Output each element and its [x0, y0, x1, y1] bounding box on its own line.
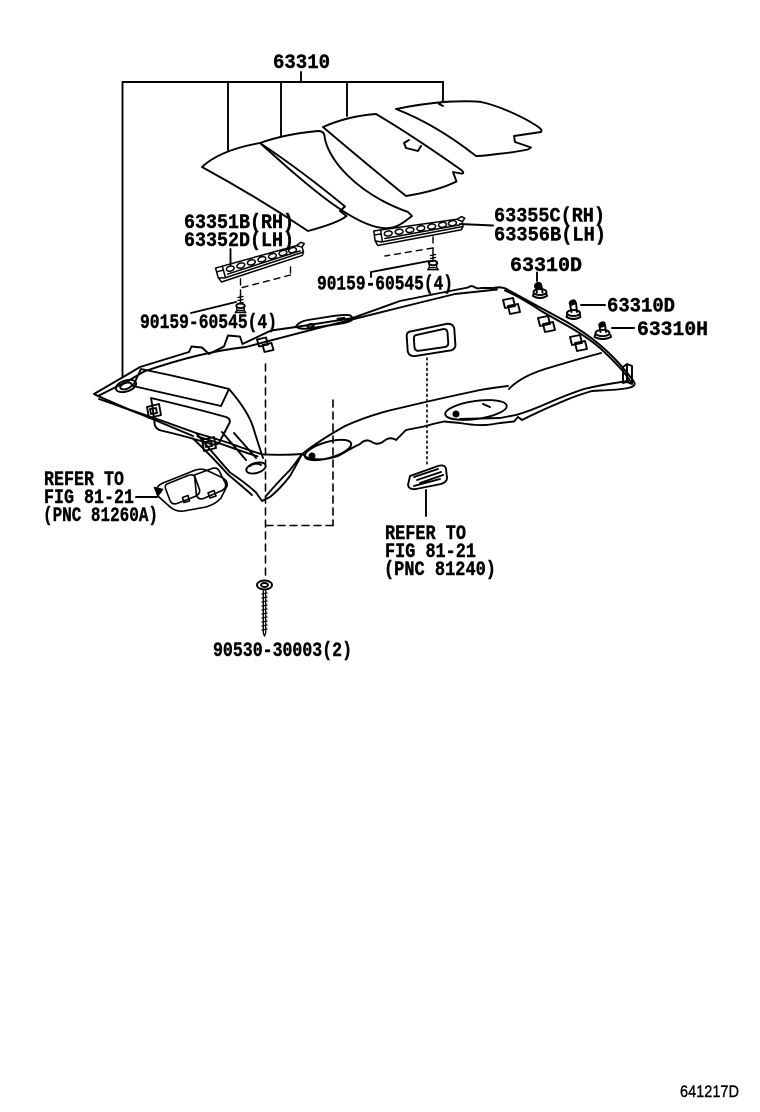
svg-text:90159-60545(4): 90159-60545(4): [317, 274, 453, 297]
svg-text:641217D: 641217D: [680, 1082, 739, 1101]
svg-text:63310D: 63310D: [607, 296, 675, 319]
svg-text:(PNC 81260A): (PNC 81260A): [43, 505, 158, 528]
svg-text:63356B(LH): 63356B(LH): [494, 225, 606, 248]
svg-text:90530-30003(2): 90530-30003(2): [213, 640, 352, 663]
svg-text:63310H: 63310H: [637, 319, 708, 342]
svg-text:63310D: 63310D: [510, 255, 582, 278]
svg-text:63352D(LH): 63352D(LH): [184, 230, 294, 253]
svg-text:(PNC 81240): (PNC 81240): [384, 559, 496, 582]
svg-text:90159-60545(4): 90159-60545(4): [140, 312, 277, 335]
